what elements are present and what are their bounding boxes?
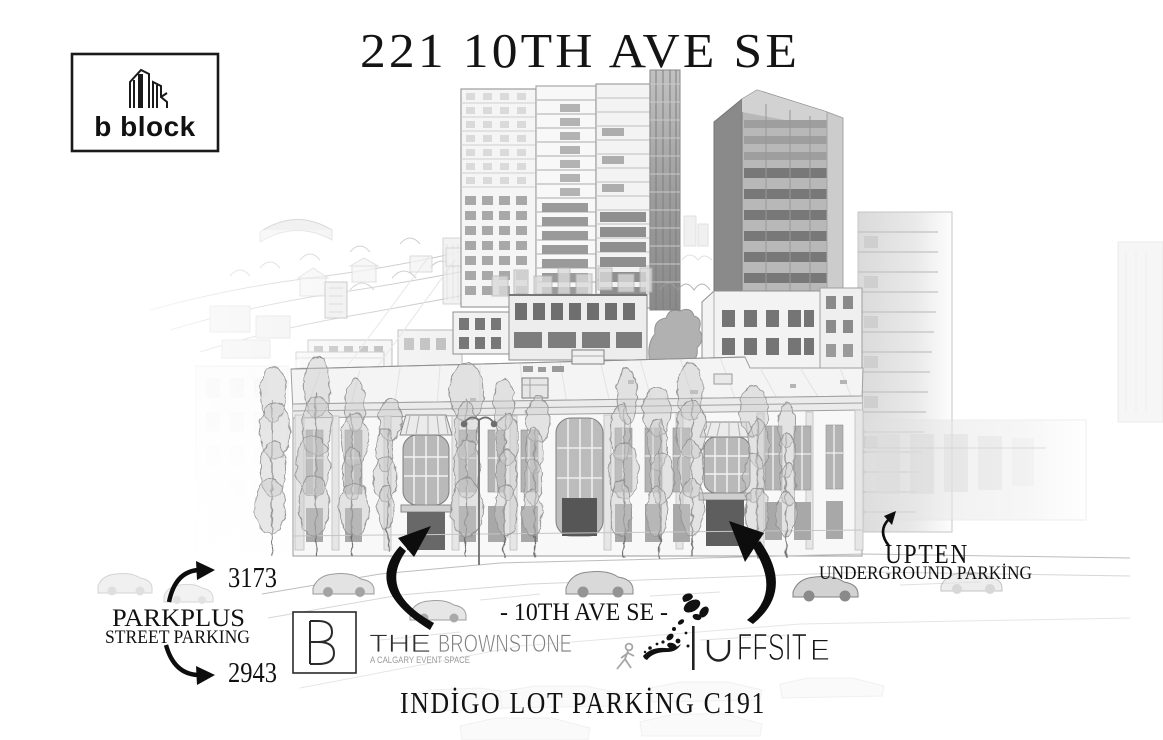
svg-text:INDİGO LOT PARKİNG C191: INDİGO LOT PARKİNG C191 [400,685,766,720]
svg-text:2943: 2943 [228,657,277,689]
svg-text:b block: b block [94,111,196,142]
svg-text:A CALGARY EVENT SPACE: A CALGARY EVENT SPACE [370,655,470,665]
svg-text:E: E [810,634,830,667]
svg-text:THE: THE [369,630,431,658]
svg-text:UNDERGROUND PARKİNG: UNDERGROUND PARKİNG [819,563,1032,584]
svg-text:BROWNSTONE: BROWNSTONE [438,630,572,658]
svg-text:- 10TH AVE SE -: - 10TH AVE SE - [500,599,668,626]
svg-text:FFSIT: FFSIT [737,627,807,669]
svg-text:STREET PARKING: STREET PARKING [105,627,250,648]
svg-text:3173: 3173 [228,562,277,594]
svg-text:221 10TH AVE SE: 221 10TH AVE SE [360,23,800,78]
